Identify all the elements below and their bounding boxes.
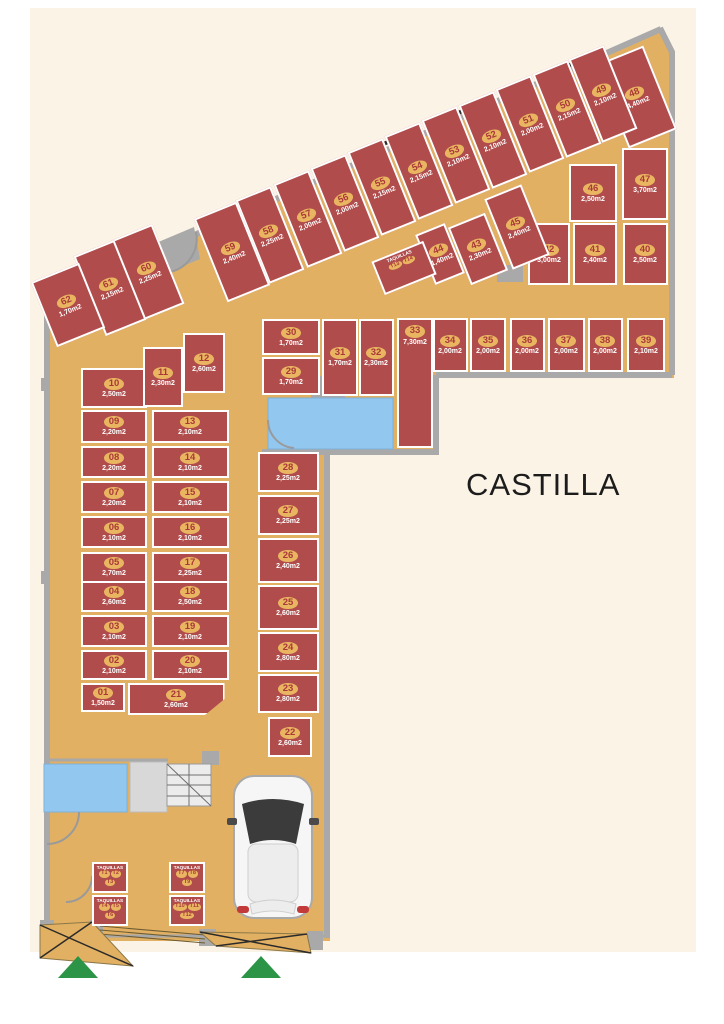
unit-area-label: 2,10m2	[178, 465, 202, 472]
unit-40: 402,50m2	[623, 223, 668, 285]
unit-area-label: 2,80m2	[276, 655, 300, 662]
unit-number-badge: 38	[595, 335, 616, 348]
taquillas-box-5: TAQUILLAST10T11T12	[169, 895, 205, 926]
unit-number-badge: 46	[583, 183, 604, 196]
unit-area-label: 2,60m2	[192, 366, 216, 373]
taquilla-tag-T4: T4	[99, 903, 109, 911]
unit-22: 222,60m2	[268, 717, 312, 757]
unit-area-label: 2,30m2	[364, 360, 388, 367]
unit-number-badge: 08	[104, 452, 125, 465]
unit-18: 182,50m2	[152, 581, 229, 612]
unit-number-badge: 01	[93, 687, 114, 700]
unit-36: 362,00m2	[510, 318, 545, 372]
unit-number-badge: 30	[281, 327, 302, 340]
unit-number-badge: 13	[180, 416, 201, 429]
unit-33: 337,30m2	[397, 318, 433, 448]
unit-11: 112,30m2	[143, 347, 183, 407]
taquilla-tag-T5: T5	[111, 903, 121, 911]
unit-area-label: 2,50m2	[102, 391, 126, 398]
unit-06: 062,10m2	[81, 516, 147, 548]
unit-number-badge: 26	[278, 550, 299, 563]
unit-01: 011,50m2	[81, 683, 125, 712]
unit-number-badge: 10	[104, 378, 125, 391]
car-icon	[227, 776, 319, 918]
unit-area-label: 1,50m2	[91, 700, 115, 707]
taquillas-label: TAQUILLAS	[97, 898, 123, 903]
unit-46: 462,50m2	[569, 164, 617, 222]
unit-area-label: 2,60m2	[102, 599, 126, 606]
unit-number-badge: 33	[405, 325, 426, 338]
unit-15: 152,10m2	[152, 481, 229, 513]
taquillas-label: TAQUILLAS	[174, 898, 200, 903]
unit-number-badge: 02	[104, 655, 125, 668]
unit-17: 172,25m2	[152, 552, 229, 583]
blue-area-center	[268, 398, 393, 449]
unit-02: 022,10m2	[81, 650, 147, 680]
unit-number-badge: 16	[180, 522, 201, 535]
taquilla-tag-T9: T9	[182, 879, 192, 887]
unit-16: 162,10m2	[152, 516, 229, 548]
taquilla-tag-T6: T6	[105, 912, 115, 920]
unit-area-label: 2,40m2	[583, 257, 607, 264]
blue-area-left	[44, 764, 127, 812]
unit-number-badge: 15	[180, 487, 201, 500]
unit-number-badge: 28	[278, 462, 299, 475]
unit-39: 392,10m2	[627, 318, 665, 372]
unit-area-label: 2,50m2	[633, 257, 657, 264]
wall-nub-1	[41, 378, 50, 391]
unit-area-label: 2,20m2	[102, 500, 126, 507]
unit-area-label: 2,20m2	[102, 465, 126, 472]
unit-area-label: 2,25m2	[178, 570, 202, 577]
unit-08: 082,20m2	[81, 446, 147, 478]
unit-area-label: 2,10m2	[102, 634, 126, 641]
unit-area-label: 2,00m2	[476, 348, 500, 355]
unit-area-label: 3,70m2	[633, 187, 657, 194]
taquillas-tags: T10T11T12	[171, 903, 203, 920]
unit-area-label: 2,00m2	[554, 348, 578, 355]
unit-05: 052,70m2	[81, 552, 147, 583]
taquillas-box-4: TAQUILLAST7T8T9	[169, 862, 205, 893]
taquilla-tag-T3: T3	[105, 879, 115, 887]
unit-32: 322,30m2	[359, 319, 394, 396]
unit-area-label: 2,25m2	[276, 475, 300, 482]
unit-20: 202,10m2	[152, 650, 229, 680]
entrance-arrow-right	[241, 956, 281, 978]
unit-number-badge: 03	[104, 621, 125, 634]
unit-area-label: 1,70m2	[328, 360, 352, 367]
unit-number-badge: 35	[478, 335, 499, 348]
unit-29: 291,70m2	[262, 357, 320, 395]
taquillas-label: TAQUILLAS	[97, 865, 123, 870]
unit-number-badge: 18	[180, 586, 201, 599]
unit-41: 412,40m2	[573, 223, 617, 285]
unit-34: 342,00m2	[433, 318, 468, 372]
taquilla-tag-T8: T8	[188, 870, 198, 878]
unit-21: 212,60m2	[128, 683, 225, 715]
unit-31: 311,70m2	[322, 319, 358, 396]
unit-number-badge: 25	[278, 597, 299, 610]
wall-nub-2	[41, 571, 50, 584]
unit-number-badge: 07	[104, 487, 125, 500]
unit-number-badge: 34	[440, 335, 461, 348]
unit-number-badge: 11	[153, 367, 173, 380]
unit-area-label: 2,00m2	[593, 348, 617, 355]
unit-area-label: 2,20m2	[102, 429, 126, 436]
page-title: CASTILLA	[466, 467, 620, 503]
unit-10: 102,50m2	[81, 368, 147, 408]
unit-number-badge: 47	[635, 174, 656, 187]
taquillas-label: TAQUILLAS	[174, 865, 200, 870]
taquillas-box-2: TAQUILLAST1T2T3	[92, 862, 128, 893]
floor-plan-canvas: 011,50m2022,10m2032,10m2042,60m2052,70m2…	[0, 0, 724, 1024]
unit-number-badge: 19	[180, 621, 201, 634]
unit-number-badge: 20	[180, 655, 201, 668]
unit-area-label: 2,00m2	[515, 348, 539, 355]
unit-area-label: 2,10m2	[178, 634, 202, 641]
unit-30: 301,70m2	[262, 319, 320, 355]
unit-area-label: 3,00m2	[537, 257, 561, 264]
unit-number-badge: 31	[330, 347, 351, 360]
unit-area-label: 2,10m2	[634, 348, 658, 355]
taquilla-tag-T12: T12	[180, 912, 193, 920]
unit-14: 142,10m2	[152, 446, 229, 478]
unit-13: 132,10m2	[152, 410, 229, 443]
unit-area-label: 2,10m2	[102, 668, 126, 675]
unit-number-badge: 41	[585, 244, 606, 257]
unit-38: 382,00m2	[588, 318, 623, 372]
unit-number-badge: 09	[104, 416, 125, 429]
taquillas-tags: T4T5T6	[94, 903, 126, 920]
taquilla-tag-T11: T11	[188, 903, 201, 911]
unit-area-label: 2,50m2	[581, 196, 605, 203]
unit-area-label: 1,70m2	[279, 340, 303, 347]
unit-19: 192,10m2	[152, 615, 229, 647]
unit-area-label: 2,60m2	[278, 740, 302, 747]
unit-area-label: 7,30m2	[403, 339, 427, 346]
unit-area-label: 2,25m2	[276, 518, 300, 525]
unit-35: 352,00m2	[470, 318, 506, 372]
unit-number-badge: 12	[194, 353, 215, 366]
unit-number-badge: 05	[104, 557, 125, 570]
unit-area-label: 2,10m2	[178, 535, 202, 542]
unit-number-badge: 27	[278, 505, 299, 518]
unit-28: 282,25m2	[258, 452, 319, 492]
unit-area-label: 2,60m2	[164, 702, 188, 709]
taquilla-tag-T7: T7	[176, 870, 186, 878]
unit-number-badge: 17	[180, 557, 201, 570]
unit-area-label: 2,70m2	[102, 570, 126, 577]
unit-area-label: 1,70m2	[279, 379, 303, 386]
unit-number-badge: 36	[517, 335, 538, 348]
gray-room	[130, 762, 167, 812]
unit-number-badge: 39	[636, 335, 657, 348]
unit-37: 372,00m2	[548, 318, 585, 372]
unit-number-badge: 04	[104, 586, 125, 599]
pillar-block-2	[202, 751, 219, 765]
taquillas-tags: T7T8T9	[171, 870, 203, 887]
taquilla-tag-T1: T1	[99, 870, 109, 878]
unit-12: 122,60m2	[183, 333, 225, 393]
unit-area-label: 2,80m2	[276, 696, 300, 703]
taquillas-box-3: TAQUILLAST4T5T6	[92, 895, 128, 926]
unit-26: 262,40m2	[258, 538, 319, 583]
unit-number-badge: 24	[278, 642, 299, 655]
unit-area-label: 2,10m2	[178, 429, 202, 436]
unit-47: 473,70m2	[622, 148, 668, 220]
unit-number-badge: 40	[635, 244, 656, 257]
unit-27: 272,25m2	[258, 495, 319, 535]
unit-area-label: 2,50m2	[178, 599, 202, 606]
unit-area-label: 2,40m2	[276, 563, 300, 570]
unit-03: 032,10m2	[81, 615, 147, 647]
unit-number-badge: 06	[104, 522, 125, 535]
unit-area-label: 2,10m2	[178, 500, 202, 507]
unit-number-badge: 21	[166, 689, 187, 702]
unit-number-badge: 29	[281, 366, 302, 379]
unit-number-badge: 14	[180, 452, 201, 465]
unit-number-badge: 37	[556, 335, 577, 348]
unit-area-label: 2,60m2	[276, 610, 300, 617]
unit-07: 072,20m2	[81, 481, 147, 513]
unit-09: 092,20m2	[81, 410, 147, 443]
unit-number-badge: 22	[280, 727, 301, 740]
taquillas-tags: T1T2T3	[94, 870, 126, 887]
stairs	[167, 764, 211, 806]
unit-area-label: 2,10m2	[178, 668, 202, 675]
unit-number-badge: 23	[278, 683, 299, 696]
unit-23: 232,80m2	[258, 674, 319, 713]
unit-number-badge: 32	[366, 347, 387, 360]
unit-area-label: 2,30m2	[151, 380, 175, 387]
unit-04: 042,60m2	[81, 581, 147, 612]
taquilla-tag-T10: T10	[173, 903, 186, 911]
unit-25: 252,60m2	[258, 585, 319, 630]
unit-area-label: 2,00m2	[438, 348, 462, 355]
unit-area-label: 2,10m2	[102, 535, 126, 542]
taquilla-tag-T2: T2	[111, 870, 121, 878]
unit-24: 242,80m2	[258, 632, 319, 672]
